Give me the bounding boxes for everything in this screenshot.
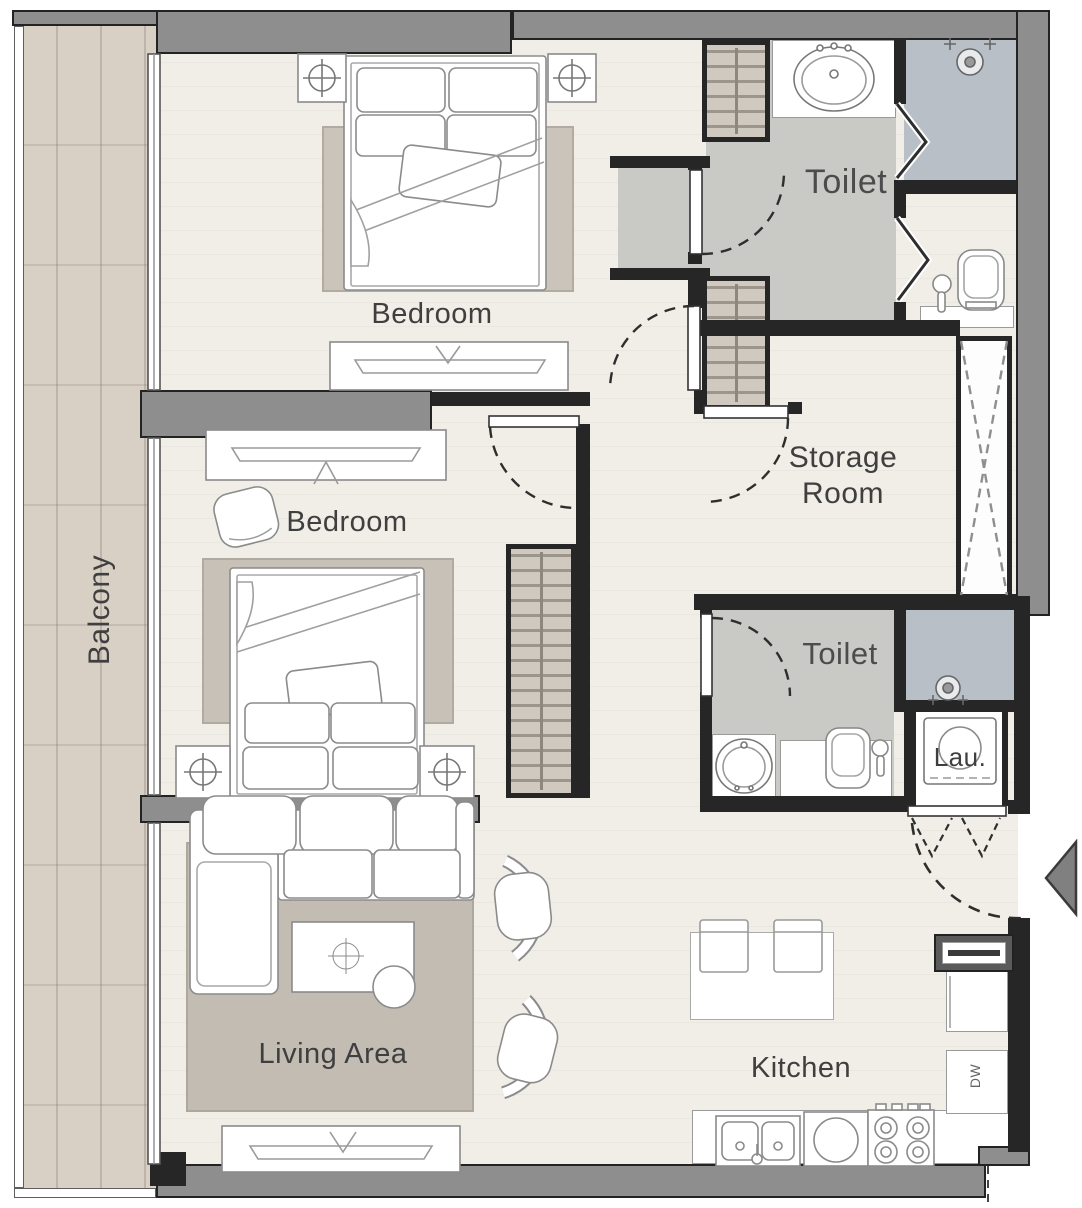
wall-toilet-top-nook-north: [610, 156, 710, 168]
bedroom-middle-rug: [202, 558, 454, 724]
service-shaft: [956, 336, 1012, 600]
fridge: [946, 970, 1008, 1032]
wall-hall-west: [576, 424, 590, 798]
entry-arrow-icon: [1046, 842, 1076, 914]
wall-bottom: [156, 1164, 986, 1198]
wall-bedroom-middle-south: [140, 795, 480, 823]
balcony-railing-left: [14, 26, 24, 1188]
wall-toilet-top-nook-south: [610, 268, 710, 280]
wall-storage-south: [694, 594, 1016, 610]
toilet-top-label: Toilet: [766, 162, 926, 202]
wall-laundry-west: [904, 704, 916, 804]
wall-top-left: [156, 10, 512, 54]
wall-storage-door-jamb-right: [788, 402, 802, 414]
floor-plan: Balcony Bedroom Bedroom Toilet Toilet St…: [0, 0, 1082, 1208]
wall-toilet-middle-west-b: [700, 692, 712, 812]
entry-cabinet-handle: [948, 950, 1000, 956]
toilet-middle-label: Toilet: [760, 635, 920, 669]
wall-top-balcony: [12, 10, 160, 26]
laundry-label: Lau.: [918, 742, 1002, 772]
wall-top-right: [512, 10, 1018, 40]
wall-storage-door-jamb-left: [694, 390, 706, 414]
kitchen-label: Kitchen: [701, 1051, 901, 1085]
bedroom-top-rug: [322, 126, 574, 292]
wall-nook-stub: [688, 280, 702, 308]
dishwasher-label: DW: [967, 1056, 987, 1096]
toilet-middle-sink-counter: [712, 734, 776, 798]
balcony-label: Balcony: [82, 525, 118, 695]
bedroom-top-label: Bedroom: [332, 297, 532, 331]
toilet-top-sink-counter: [772, 40, 896, 118]
kitchen-island: [690, 932, 834, 1020]
storage-room-label: Storage Room: [743, 440, 943, 516]
living-area-rug: [186, 842, 474, 1112]
toilet-middle-wc-shelf: [780, 740, 892, 798]
wall-balcony-bottom-post: [150, 1152, 186, 1186]
bedroom-middle-label: Bedroom: [247, 505, 447, 539]
balcony-railing-bottom: [14, 1188, 156, 1198]
wall-bedroom-divider: [140, 390, 432, 438]
closet-rail: [735, 284, 738, 402]
wall-right-middle: [1014, 596, 1030, 812]
shower-top-floor: [904, 38, 1016, 180]
wardrobe-mid-closet: [702, 276, 770, 410]
toilet-top-entry-nook-floor: [618, 166, 710, 270]
wall-right-upper: [1016, 10, 1050, 616]
wall-toilet-middle-south: [700, 796, 912, 812]
wardrobe-top-closet: [702, 40, 770, 142]
wall-toilet-middle-west-a: [700, 610, 712, 618]
closet-rail: [540, 552, 543, 790]
wall-bedroom-middle-north: [432, 392, 590, 406]
wall-storage-north: [694, 320, 960, 336]
closet-rail: [735, 48, 738, 134]
wall-shower-top-a: [894, 38, 906, 104]
living-area-label: Living Area: [233, 1037, 433, 1071]
kitchen-counter: [692, 1110, 1010, 1164]
bedroom-middle-wardrobe: [506, 544, 576, 798]
